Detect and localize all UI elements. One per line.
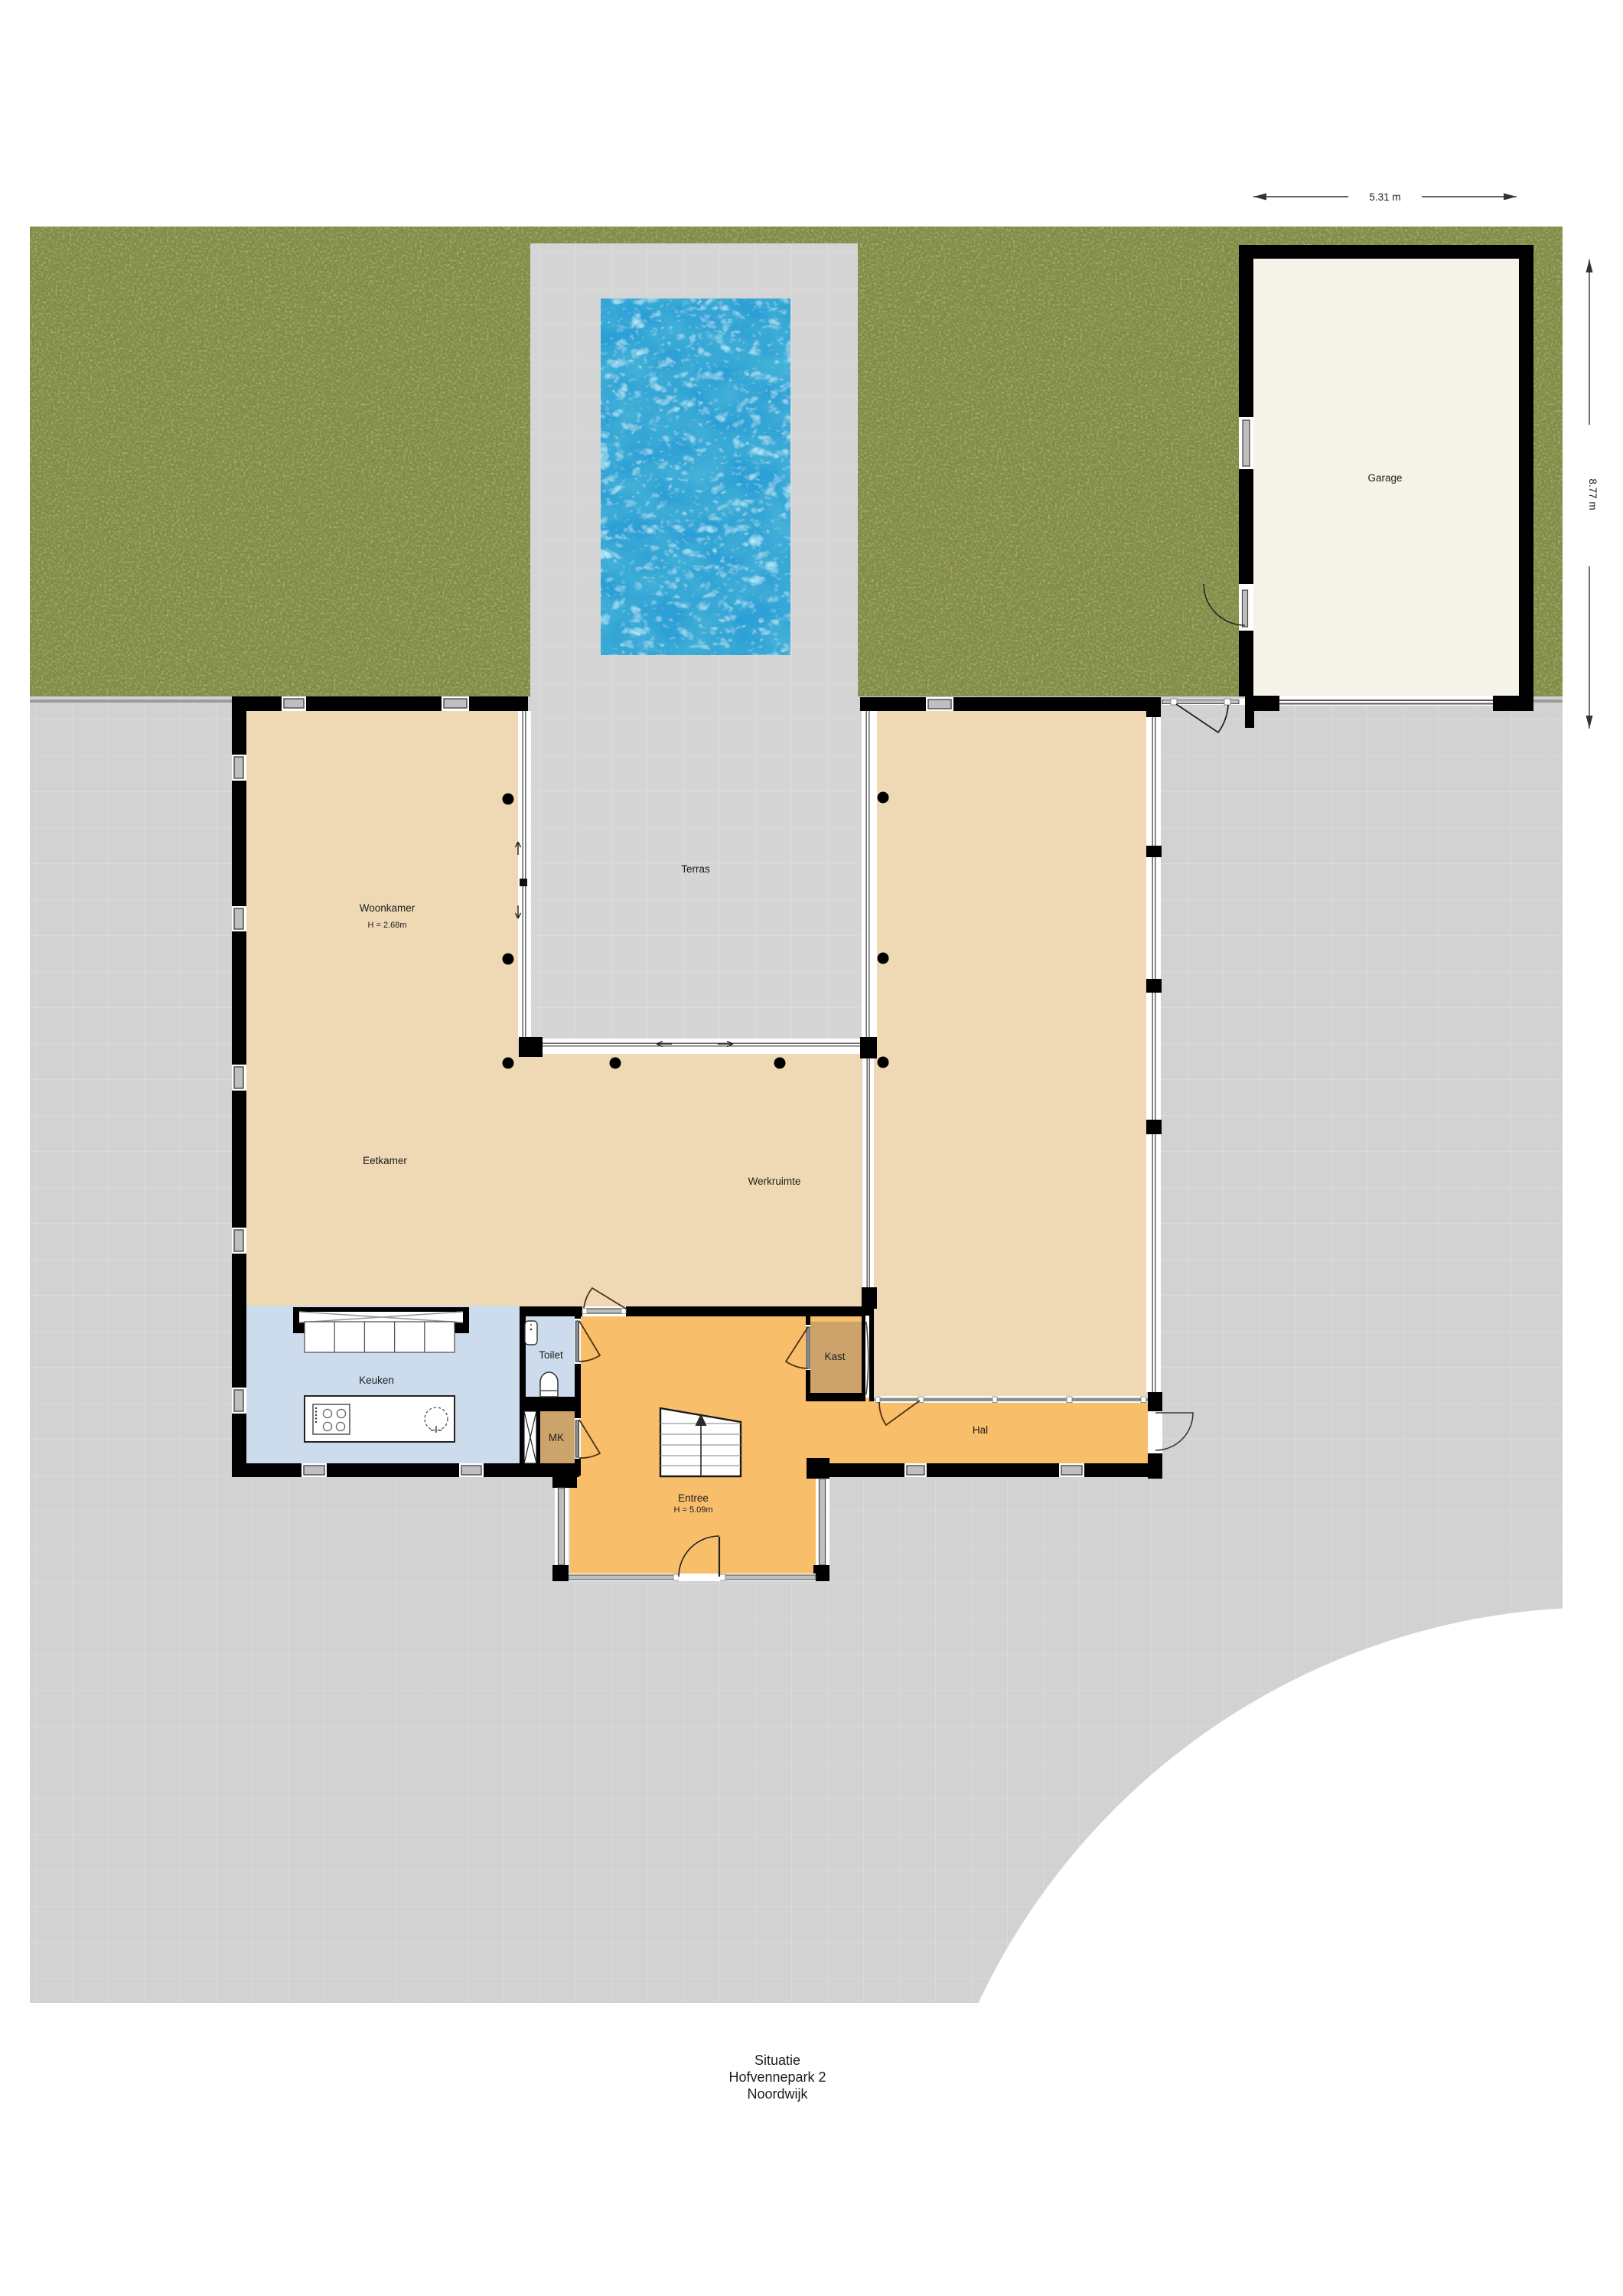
svg-text:Werkruimte: Werkruimte — [748, 1176, 801, 1187]
svg-text:MK: MK — [549, 1432, 564, 1443]
svg-text:Terras: Terras — [681, 863, 710, 875]
svg-text:8.77 m: 8.77 m — [1587, 478, 1599, 510]
svg-text:Garage: Garage — [1367, 472, 1402, 484]
svg-text:Keuken: Keuken — [359, 1375, 394, 1386]
svg-text:5.31 m: 5.31 m — [1369, 191, 1400, 203]
svg-text:Eetkamer: Eetkamer — [363, 1155, 407, 1166]
svg-text:Hofvennepark 2: Hofvennepark 2 — [728, 2069, 826, 2085]
svg-text:H = 5.09m: H = 5.09m — [673, 1505, 712, 1515]
svg-text:Noordwijk: Noordwijk — [747, 2086, 808, 2102]
svg-text:H = 2.68m: H = 2.68m — [367, 921, 406, 930]
svg-text:Toilet: Toilet — [539, 1349, 563, 1361]
svg-text:Kast: Kast — [824, 1351, 845, 1362]
svg-text:Entree: Entree — [678, 1492, 709, 1504]
svg-text:Hal: Hal — [973, 1424, 988, 1436]
svg-text:Situatie: Situatie — [754, 2053, 800, 2068]
svg-text:Woonkamer: Woonkamer — [360, 902, 416, 914]
